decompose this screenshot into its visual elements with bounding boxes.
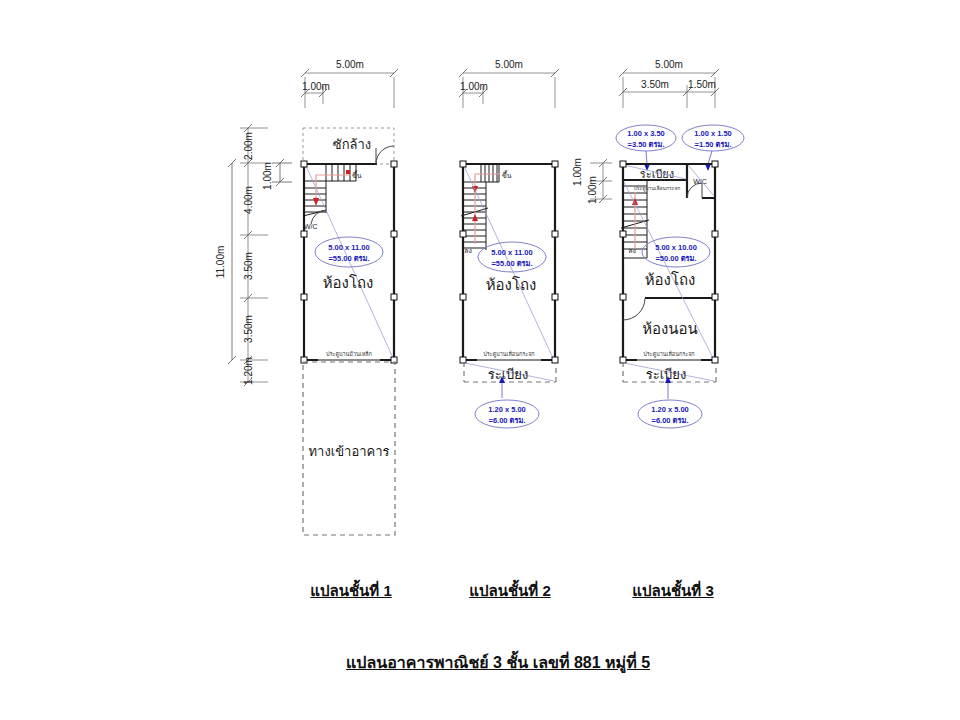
plan3-cal1-line2: =3.50 ตรม. <box>628 140 665 149</box>
plan2-dim-5m: 5.00m <box>495 59 523 70</box>
plan3-cal2-line1: 1.00 x 1.50 <box>694 129 732 138</box>
plan1-dim-400: 4.00m <box>243 186 254 214</box>
plan3-balcony-label: ระเบียง <box>646 367 687 382</box>
plan2-caption: แปลนชั้นที่ 2 <box>440 579 580 599</box>
plan1-hall-label: ห้องโถง <box>323 274 374 291</box>
plan3-bedroom-door <box>623 298 645 320</box>
plan3-balcony-area2: =6.00 ตรม. <box>652 416 689 425</box>
sheet-title-text: แปลนอาคารพาณิชย์ 3 ชั้น เลขที่ 881 หมู่ท… <box>346 654 650 671</box>
plan2-balcony-area2: =6.00 ตรม. <box>489 416 526 425</box>
plan-3: 5.00m 3.50m 1.50m 1.00m 1.00m 1.00 x 3.5… <box>572 59 744 428</box>
plan1-laundry-label: ซักล้าง <box>333 137 371 152</box>
plan1-area-line1: 5.00 x 11.00 <box>328 243 369 252</box>
plan3-caption-text: แปลนชั้นที่ 3 <box>632 582 713 599</box>
plan3-cal2-line2: =1.50 ตรม. <box>695 140 732 149</box>
plan1-dim-5m: 5.00m <box>336 59 364 70</box>
plan1-rollerdoor-note: ประตูบานม้วนเหล็ก <box>326 350 372 358</box>
plan2-slidingdoor-note: ประตูบานเลื่อนกระจก <box>483 350 534 358</box>
plan1-caption-text: แปลนชั้นที่ 1 <box>310 582 391 599</box>
plan1-dim-1m: 1.00m <box>302 81 330 92</box>
plan3-dim-150: 1.50m <box>688 79 716 90</box>
plan2-balcony-label: ระเบียง <box>488 367 529 382</box>
plan1-dim-200: 2.00m <box>243 132 254 160</box>
plan3-bedroom-label: ห้องนอน <box>642 320 698 337</box>
plan3-dim-350: 3.50m <box>641 79 669 90</box>
plan1-dim-350a: 3.50m <box>243 252 254 280</box>
plan3-dim-100a: 1.00m <box>572 158 583 186</box>
sheet-title: แปลนอาคารพาณิชย์ 3 ชั้น เลขที่ 881 หมู่ท… <box>308 650 688 675</box>
plan3-dim-5m: 5.00m <box>655 59 683 70</box>
plan1-dim-350b: 3.50m <box>243 315 254 343</box>
plan2-hall-label: ห้องโถง <box>486 276 537 293</box>
plan-2: 5.00m 1.00m ประตูบานเลื่อนกระจก ขึ้น ลง … <box>459 59 559 428</box>
plan2-area-line2: =55.00 ตรม. <box>491 259 532 268</box>
plan2-down-label: ลง <box>464 247 472 254</box>
plan3-balcony-area1: 1.20 x 5.00 <box>651 405 689 414</box>
plan2-caption-text: แปลนชั้นที่ 2 <box>469 582 550 599</box>
plan2-balcony-area1: 1.20 x 5.00 <box>488 405 526 414</box>
plan1-caption: แปลนชั้นที่ 1 <box>281 579 421 599</box>
plan1-entrance-label: ทางเข้าอาคาร <box>309 444 390 459</box>
plan3-area-line2: =50.00 ตรม. <box>655 254 696 263</box>
plan1-area-line2: =55.00 ตรม. <box>328 254 369 263</box>
plan1-dim-100: 1.00m <box>262 162 273 190</box>
plan3-dim-100b: 1.00m <box>587 176 598 204</box>
plan2-dim-1m: 1.00m <box>460 81 488 92</box>
floorplan-drawing: 5.00m 1.00m 2.00m 1.00m 4.00m 3.50m 3.50… <box>0 0 960 720</box>
plan3-hall-label: ห้องโถง <box>645 271 696 288</box>
plan2-stairs <box>461 164 499 250</box>
plan-1: 5.00m 1.00m 2.00m 1.00m 4.00m 3.50m 3.50… <box>215 59 398 535</box>
plan2-area-line1: 5.00 x 11.00 <box>491 248 532 257</box>
plan3-cal1-line1: 1.00 x 3.50 <box>627 129 665 138</box>
plan1-dim-120: 1.20m <box>243 357 254 385</box>
plan3-slidingdoor-note: ประตูบานเลื่อนกระจก <box>643 350 694 358</box>
plan3-down-label: ลง <box>628 247 636 254</box>
plan1-wc-label: W/C <box>304 223 318 230</box>
plan1-left-dimensions <box>228 124 292 386</box>
plan2-up-label: ขึ้น <box>502 169 512 179</box>
drawing-sheet: 5.00m 1.00m 2.00m 1.00m 4.00m 3.50m 3.50… <box>0 0 960 720</box>
plan3-area-line1: 5.00 x 10.00 <box>655 243 697 252</box>
plan3-caption: แปลนชั้นที่ 3 <box>603 579 743 599</box>
plan1-dim-total: 11.00m <box>215 246 226 279</box>
plan3-wc-door <box>687 183 702 198</box>
plan1-up-label: ขึ้น <box>352 169 362 179</box>
